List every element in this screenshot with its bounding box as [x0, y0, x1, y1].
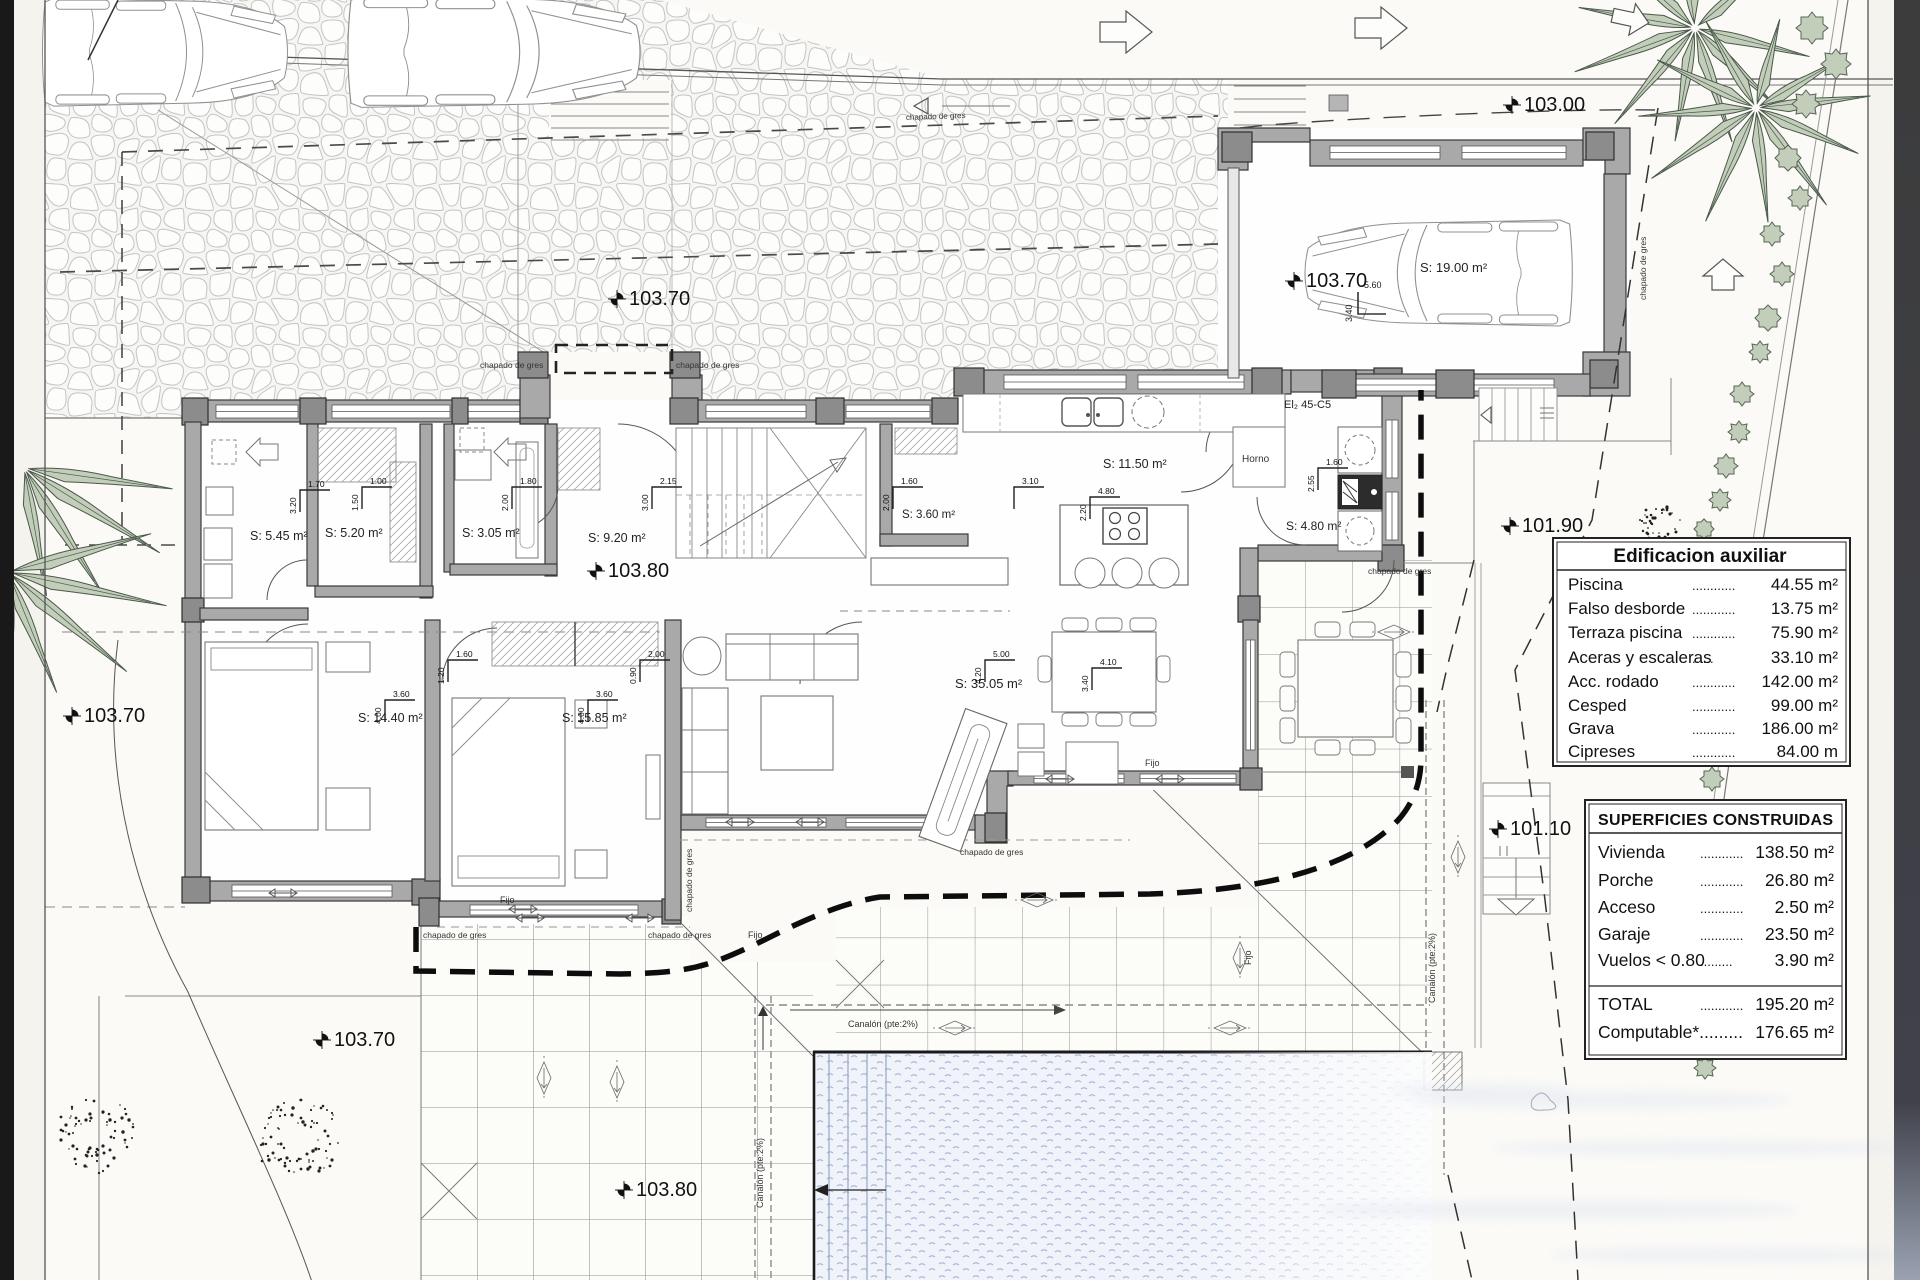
svg-text:S: 15.85 m²: S: 15.85 m²: [562, 711, 627, 725]
svg-text:103.70: 103.70: [629, 288, 690, 310]
svg-text:S: 11.50 m²: S: 11.50 m²: [1103, 457, 1167, 471]
svg-text:3.20: 3.20: [288, 497, 298, 514]
svg-text:............: ............: [1692, 745, 1735, 760]
svg-text:1.50: 1.50: [350, 494, 360, 511]
svg-text:101.90: 101.90: [1522, 515, 1583, 537]
svg-text:5.00: 5.00: [993, 649, 1010, 659]
svg-text:............: ............: [1700, 874, 1743, 889]
svg-text:2.15: 2.15: [660, 476, 677, 486]
svg-text:Vuelos < 0.80: Vuelos < 0.80: [1598, 950, 1705, 970]
svg-text:S: 3.60 m²: S: 3.60 m²: [902, 509, 955, 521]
svg-text:0.90: 0.90: [628, 667, 638, 684]
svg-text:............: ............: [1692, 626, 1735, 641]
svg-text:El₂ 45-C5: El₂ 45-C5: [1284, 399, 1331, 411]
svg-text:......: ......: [1692, 651, 1714, 666]
svg-text:103.80: 103.80: [608, 560, 669, 582]
svg-text:S: 19.00 m²: S: 19.00 m²: [1420, 260, 1488, 275]
svg-text:103.00: 103.00: [1524, 94, 1585, 116]
svg-text:chapado de gres: chapado de gres: [684, 849, 694, 912]
svg-text:............: ............: [1700, 928, 1743, 943]
svg-text:Edificacion auxiliar: Edificacion auxiliar: [1613, 546, 1787, 567]
svg-text:chapado de gres: chapado de gres: [423, 930, 486, 940]
svg-text:............: ............: [1692, 675, 1735, 690]
svg-text:............: ............: [1692, 699, 1735, 714]
svg-text:1.80: 1.80: [520, 476, 537, 486]
svg-text:4.20: 4.20: [973, 667, 983, 684]
svg-text:Fijo: Fijo: [748, 930, 763, 940]
svg-text:Fijo: Fijo: [1145, 758, 1160, 768]
svg-text:S: 4.80 m²: S: 4.80 m²: [1286, 519, 1341, 533]
svg-text:33.10 m²: 33.10 m²: [1771, 648, 1838, 667]
svg-text:4.00: 4.00: [576, 707, 586, 724]
svg-text:Canalón (pte:2%): Canalón (pte:2%): [755, 1138, 765, 1208]
svg-text:Canalón (pte:2%): Canalón (pte:2%): [848, 1019, 918, 1029]
svg-text:4.00: 4.00: [373, 707, 383, 724]
svg-text:2.55: 2.55: [1306, 475, 1316, 492]
svg-text:3.90 m²: 3.90 m²: [1775, 950, 1834, 970]
svg-text:2.20: 2.20: [1078, 504, 1088, 521]
svg-text:............: ............: [1692, 578, 1735, 593]
svg-text:Horno: Horno: [1242, 454, 1270, 465]
svg-text:1.60: 1.60: [456, 649, 473, 659]
svg-text:1.70: 1.70: [308, 479, 325, 489]
svg-text:23.50 m²: 23.50 m²: [1765, 924, 1834, 944]
svg-text:142.00 m²: 142.00 m²: [1761, 672, 1838, 691]
svg-text:Cesped: Cesped: [1568, 696, 1627, 715]
svg-text:S: 9.20 m²: S: 9.20 m²: [588, 531, 646, 545]
svg-text:S: 5.45 m²: S: 5.45 m²: [250, 529, 308, 543]
svg-text:.........: .........: [1700, 954, 1733, 969]
svg-text:99.00 m²: 99.00 m²: [1771, 696, 1838, 715]
svg-text:44.55 m²: 44.55 m²: [1771, 575, 1838, 594]
svg-text:............: ............: [1700, 998, 1743, 1013]
svg-text:195.20 m²: 195.20 m²: [1755, 994, 1834, 1014]
svg-text:101.10: 101.10: [1510, 818, 1571, 840]
svg-text:3.10: 3.10: [1022, 476, 1039, 486]
svg-text:Grava: Grava: [1568, 719, 1615, 738]
svg-text:2.50 m²: 2.50 m²: [1775, 897, 1834, 917]
svg-text:chapado de gres: chapado de gres: [676, 360, 739, 370]
svg-text:176.65 m²: 176.65 m²: [1755, 1022, 1834, 1042]
svg-text:Canalón (pte:2%): Canalón (pte:2%): [1427, 933, 1437, 1003]
svg-text:1.60: 1.60: [901, 476, 918, 486]
svg-text:Terraza piscina: Terraza piscina: [1568, 623, 1683, 642]
svg-text:26.80 m²: 26.80 m²: [1765, 870, 1834, 890]
svg-text:75.90 m²: 75.90 m²: [1771, 623, 1838, 642]
svg-text:............: ............: [1692, 602, 1735, 617]
svg-text:S: 35.05 m²: S: 35.05 m²: [955, 676, 1023, 691]
svg-text:3.40: 3.40: [1080, 675, 1090, 692]
svg-text:chapado de gres: chapado de gres: [480, 360, 543, 370]
svg-text:103.80: 103.80: [636, 1179, 697, 1201]
svg-text:3.00: 3.00: [640, 494, 650, 511]
svg-text:TOTAL: TOTAL: [1598, 994, 1653, 1014]
svg-text:S: 3.05 m²: S: 3.05 m²: [462, 526, 520, 540]
svg-text:chapado de gres: chapado de gres: [960, 847, 1023, 857]
svg-text:4.10: 4.10: [1100, 657, 1117, 667]
svg-text:Porche: Porche: [1598, 870, 1653, 890]
svg-text:Piscina: Piscina: [1568, 575, 1623, 594]
svg-text:3.40: 3.40: [1344, 304, 1354, 322]
svg-text:............: ............: [1700, 901, 1743, 916]
svg-text:Fijo: Fijo: [500, 895, 515, 905]
svg-text:Acc. rodado: Acc. rodado: [1568, 672, 1659, 691]
svg-text:Computable*.........: Computable*.........: [1598, 1022, 1743, 1042]
svg-text:S: 5.20 m²: S: 5.20 m²: [325, 526, 383, 540]
svg-text:Vivienda: Vivienda: [1598, 842, 1665, 862]
svg-text:103.70: 103.70: [334, 1029, 395, 1051]
svg-text:1.60: 1.60: [1326, 457, 1343, 467]
svg-text:1.20: 1.20: [436, 667, 446, 684]
svg-text:2.00: 2.00: [500, 494, 510, 511]
svg-text:186.00 m²: 186.00 m²: [1761, 719, 1838, 738]
svg-text:Acceso: Acceso: [1598, 897, 1655, 917]
svg-text:SUPERFICIES CONSTRUIDAS: SUPERFICIES CONSTRUIDAS: [1598, 812, 1833, 829]
svg-text:Falso desborde: Falso desborde: [1568, 599, 1685, 618]
svg-text:2.00: 2.00: [881, 494, 891, 511]
svg-text:103.70: 103.70: [1306, 270, 1367, 292]
svg-text:138.50 m²: 138.50 m²: [1755, 842, 1834, 862]
svg-text:4.80: 4.80: [1098, 486, 1115, 496]
svg-text:2.00: 2.00: [648, 649, 665, 659]
svg-text:............: ............: [1692, 722, 1735, 737]
svg-text:1.00: 1.00: [370, 476, 387, 486]
svg-text:3.60: 3.60: [393, 689, 410, 699]
svg-text:Cipreses: Cipreses: [1568, 742, 1635, 761]
svg-text:103.70: 103.70: [84, 705, 145, 727]
svg-text:13.75 m²: 13.75 m²: [1771, 599, 1838, 618]
svg-text:Fijo: Fijo: [1243, 950, 1253, 965]
svg-text:chapado de gres: chapado de gres: [648, 930, 711, 940]
svg-text:chapado de gres: chapado de gres: [1368, 566, 1431, 576]
svg-text:chapado de gres: chapado de gres: [1638, 237, 1648, 300]
svg-text:............: ............: [1700, 846, 1743, 861]
svg-text:Aceras y escaleras: Aceras y escaleras: [1568, 648, 1712, 667]
svg-text:S: 14.40 m²: S: 14.40 m²: [358, 711, 423, 725]
svg-text:84.00 m: 84.00 m: [1777, 742, 1838, 761]
svg-text:3.60: 3.60: [596, 689, 613, 699]
svg-text:Garaje: Garaje: [1598, 924, 1651, 944]
